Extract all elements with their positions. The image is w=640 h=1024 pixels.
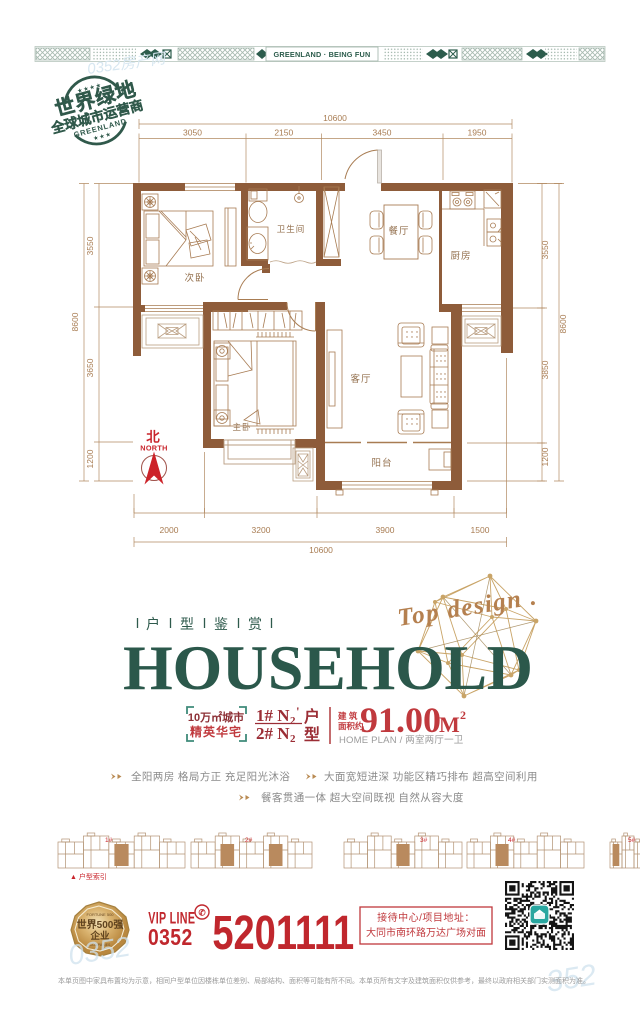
svg-text:1200: 1200: [85, 449, 95, 468]
svg-text:3450: 3450: [373, 128, 392, 138]
svg-text:建 筑: 建 筑: [337, 711, 358, 721]
svg-text:接待中心/项目地址：: 接待中心/项目地址：: [377, 911, 475, 924]
svg-text:8600: 8600: [70, 312, 80, 331]
svg-text:1# N: 1# N: [256, 706, 290, 725]
svg-text:1#: 1#: [105, 837, 113, 844]
svg-text:M: M: [439, 712, 460, 737]
svg-text:': ': [296, 704, 300, 719]
svg-text:✆: ✆: [198, 908, 206, 918]
svg-text:NORTH: NORTH: [140, 444, 167, 453]
svg-text:客厅: 客厅: [350, 373, 371, 385]
svg-text:次卧: 次卧: [184, 272, 205, 284]
svg-text:1950: 1950: [468, 128, 487, 138]
svg-text:HOME PLAN / 两室两厅一卫: HOME PLAN / 两室两厅一卫: [339, 734, 464, 746]
svg-text:3200: 3200: [252, 525, 271, 535]
svg-text:户: 户: [146, 616, 160, 632]
svg-text:3850: 3850: [540, 360, 550, 379]
svg-text:5#: 5#: [628, 837, 636, 844]
svg-text:FORTUNE 500: FORTUNE 500: [86, 912, 114, 917]
svg-text:3550: 3550: [540, 240, 550, 259]
svg-text:3650: 3650: [85, 358, 95, 377]
svg-text:全阳两房 格局方正 充足阳光沐浴: 全阳两房 格局方正 充足阳光沐浴: [131, 770, 290, 783]
svg-text:0352: 0352: [148, 926, 193, 951]
svg-text:世界500强: 世界500强: [77, 918, 124, 931]
svg-text:赏: 赏: [248, 616, 262, 632]
svg-text:HOUSEHOLD: HOUSEHOLD: [123, 632, 533, 703]
svg-text:3900: 3900: [376, 525, 395, 535]
svg-text:鉴: 鉴: [214, 616, 228, 632]
svg-text:主卧: 主卧: [232, 422, 251, 432]
svg-text:Top design .: Top design .: [396, 583, 540, 632]
svg-text:VIP LINE: VIP LINE: [148, 908, 195, 927]
svg-text:型: 型: [180, 616, 194, 632]
svg-text:型: 型: [304, 726, 320, 744]
svg-text:2000: 2000: [160, 525, 179, 535]
svg-text:3050: 3050: [183, 128, 202, 138]
svg-text:阳台: 阳台: [371, 457, 392, 469]
svg-text:2150: 2150: [274, 128, 293, 138]
svg-text:91.00: 91.00: [360, 700, 441, 740]
svg-text:2: 2: [290, 733, 296, 745]
svg-text:精英华宅: 精英华宅: [190, 724, 242, 739]
svg-text:2#: 2#: [245, 837, 253, 844]
svg-text:大同市南环路万达广场对面: 大同市南环路万达广场对面: [366, 926, 486, 939]
svg-text:8600: 8600: [558, 314, 568, 333]
svg-text:厨房: 厨房: [450, 250, 471, 262]
svg-text:3550: 3550: [85, 236, 95, 255]
svg-text:4#: 4#: [508, 837, 516, 844]
svg-text:户: 户: [304, 707, 320, 726]
svg-text:10600: 10600: [323, 113, 347, 123]
svg-text:2: 2: [460, 708, 466, 722]
svg-text:1200: 1200: [540, 447, 550, 466]
svg-text:大面宽短进深 功能区精巧排布 超高空间利用: 大面宽短进深 功能区精巧排布 超高空间利用: [324, 770, 538, 783]
svg-text:1500: 1500: [471, 525, 490, 535]
svg-text:餐客贯通一体 超大空间既视 自然从容大度: 餐客贯通一体 超大空间既视 自然从容大度: [261, 791, 464, 804]
svg-text:本单页图中家具布置均为示意，相同户型单位因楼栋单位差别、局部: 本单页图中家具布置均为示意，相同户型单位因楼栋单位差别、局部结构、面积等可能有所…: [58, 976, 590, 985]
svg-text:卫生间: 卫生间: [277, 224, 306, 234]
svg-text:▲ 户型索引: ▲ 户型索引: [70, 872, 107, 881]
svg-text:5201111: 5201111: [212, 907, 354, 960]
svg-text:10600: 10600: [309, 545, 333, 555]
svg-text:10万㎡城市: 10万㎡城市: [188, 710, 244, 724]
svg-text:餐厅: 餐厅: [388, 225, 409, 237]
svg-text:2# N: 2# N: [256, 724, 290, 743]
svg-text:北: 北: [146, 430, 160, 445]
svg-text:3#: 3#: [420, 837, 428, 844]
svg-text:GREENLAND · BEING FUN: GREENLAND · BEING FUN: [273, 50, 370, 59]
